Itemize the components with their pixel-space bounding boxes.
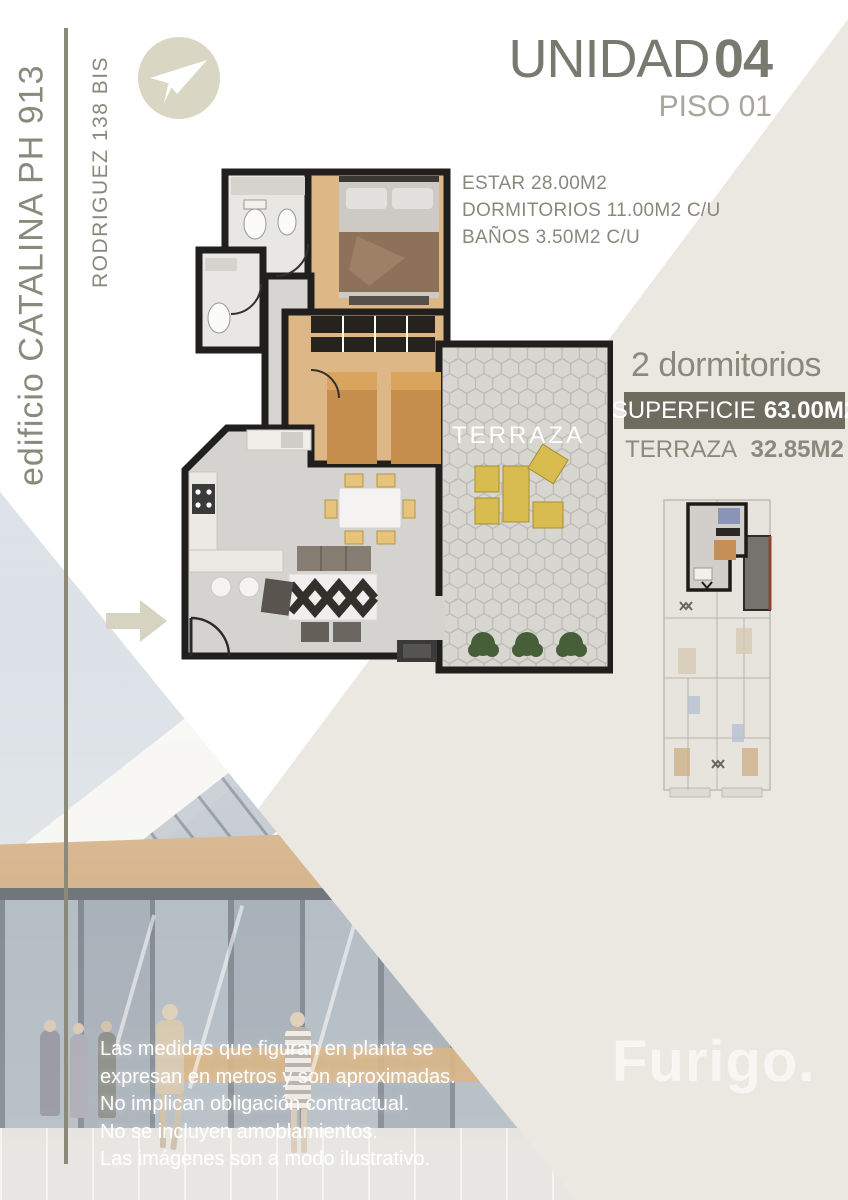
terraza-label: TERRAZA	[625, 436, 736, 463]
key-plan-thumbnail	[658, 498, 776, 805]
superficie-label: SUPERFICIE	[612, 397, 756, 425]
brand-logo	[137, 36, 221, 120]
building-name-vertical: edificio CATALINA PH 913	[4, 30, 60, 486]
terrace-label: TERRAZA	[452, 422, 582, 450]
disclaimer-line: No implican obligación contractual.	[100, 1091, 456, 1119]
flyer-page: edificio CATALINA PH 913 RODRIGUEZ 138 B…	[0, 0, 848, 1200]
superficie-banner: SUPERFICIE 63.00M2	[624, 392, 845, 429]
key-plan-drawing	[658, 498, 776, 800]
superficie-value: 63.00M2	[764, 397, 848, 425]
terraza-line: TERRAZA 32.85M2	[624, 432, 845, 464]
disclaimer-line: No se incluyen amoblamientos.	[100, 1119, 456, 1147]
disclaimer-line: Las imágenes son a modo ilustrativo.	[100, 1146, 456, 1174]
disclaimer-text: Las medidas que figuran en planta se exp…	[100, 1036, 456, 1174]
unit-number: 04	[714, 29, 772, 89]
terraza-value: 32.85M2	[750, 436, 843, 463]
right-arrow-icon	[106, 598, 168, 644]
disclaimer-line: expresan en metros y son aproximadas.	[100, 1064, 456, 1092]
floor-label: PISO 01	[508, 90, 772, 124]
unit-label: UNIDAD	[508, 29, 709, 89]
paper-plane-icon	[137, 36, 221, 120]
vertical-divider-rule	[64, 28, 68, 1164]
building-address-vertical: RODRIGUEZ 138 BIS	[84, 36, 118, 288]
watermark: Furigo.	[612, 1028, 816, 1095]
unit-header: UNIDAD 04 PISO 01	[508, 28, 772, 124]
disclaimer-line: Las medidas que figuran en planta se	[100, 1036, 456, 1064]
bedrooms-title: 2 dormitorios	[612, 346, 840, 385]
entrance-pointer	[106, 598, 168, 649]
floor-plan-drawing	[181, 166, 613, 674]
